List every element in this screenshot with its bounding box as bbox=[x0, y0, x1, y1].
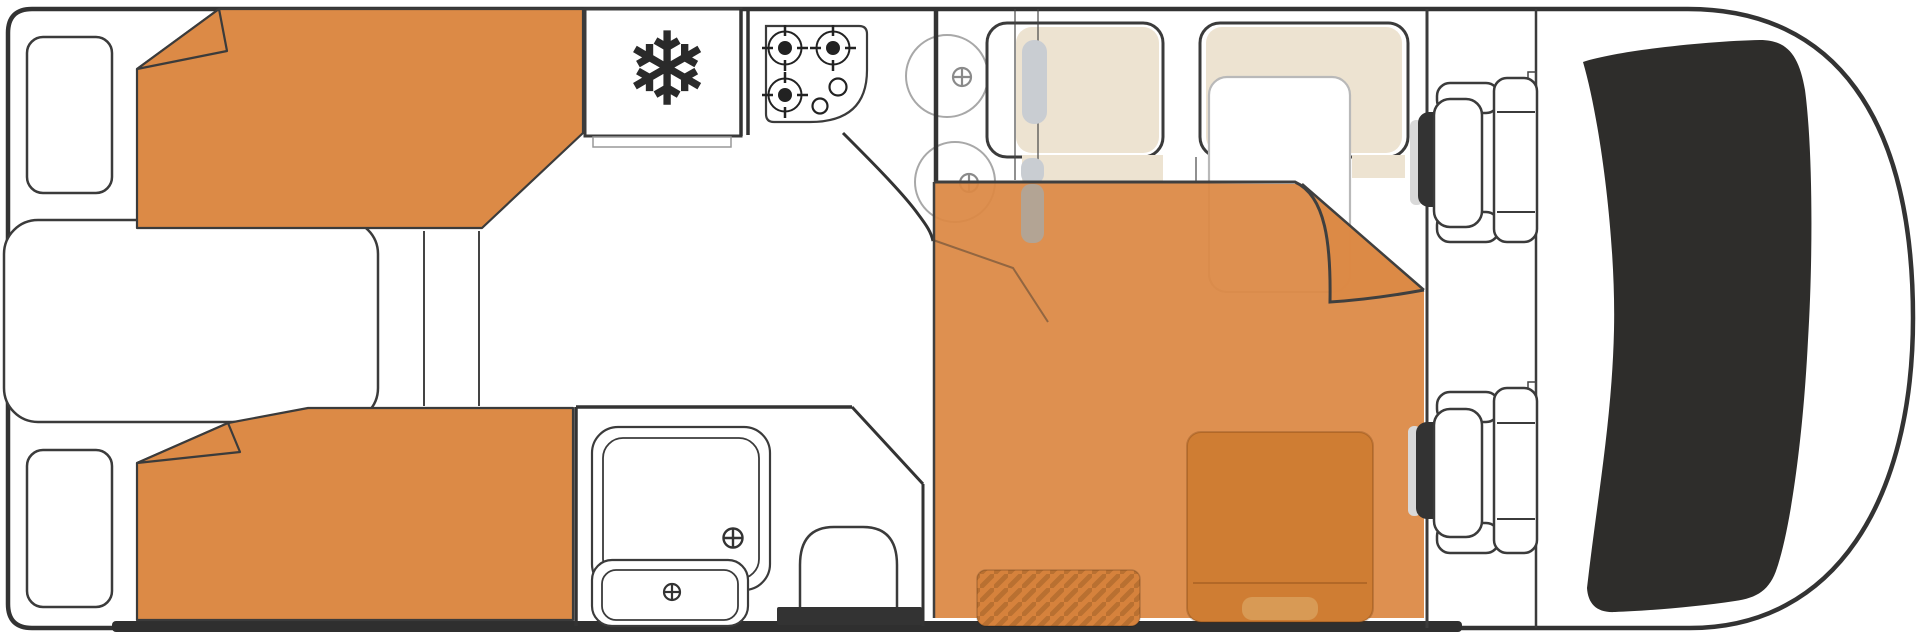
entry-step-mat-hatch bbox=[977, 570, 1140, 626]
floorplan-canvas: ❄ bbox=[0, 0, 1920, 635]
stove-knob-2 bbox=[813, 99, 828, 114]
snowflake-icon: ❄ bbox=[625, 11, 709, 128]
sink-drain-1 bbox=[953, 68, 971, 86]
center-platform bbox=[4, 220, 378, 422]
cab-seat-top-backrest bbox=[1494, 78, 1537, 242]
dinette-bench-front-cushion-lower bbox=[1352, 155, 1405, 178]
sink-bowl-1 bbox=[906, 35, 988, 117]
windshield-dashboard bbox=[1583, 40, 1811, 612]
cab-seat-bottom-cushion bbox=[1434, 409, 1482, 537]
counter-edge bbox=[843, 133, 933, 241]
seatbelt-front-ghost bbox=[1021, 184, 1044, 243]
bathroom bbox=[576, 407, 923, 626]
cab-seat-bottom-backrest bbox=[1494, 388, 1537, 553]
floorplan-page: ❄ bbox=[0, 0, 1920, 635]
bathroom-wall-diagonal bbox=[852, 407, 923, 484]
shower-tray bbox=[603, 438, 759, 579]
basin-inner bbox=[602, 570, 738, 620]
fridge-shelf bbox=[593, 137, 731, 147]
bottom-bed-pillow bbox=[27, 450, 112, 607]
rear-bedroom bbox=[4, 9, 583, 620]
toilet-base bbox=[777, 607, 922, 625]
toilet-bowl bbox=[800, 527, 897, 612]
cab-seat-bottom bbox=[1434, 388, 1537, 553]
cab-seat-top-cushion bbox=[1434, 99, 1482, 227]
seatbelt-front-upper bbox=[1021, 158, 1044, 184]
top-bed-pillow bbox=[27, 37, 112, 193]
stove-knob-1 bbox=[830, 79, 847, 96]
basin-drain bbox=[664, 584, 680, 600]
stored-table-pill bbox=[1242, 597, 1318, 620]
stored-table bbox=[1187, 432, 1373, 622]
dinette-bed-overlay bbox=[933, 182, 1424, 626]
seatbelt-rear bbox=[1022, 40, 1047, 124]
shower-drain bbox=[724, 529, 743, 548]
cab-seat-top bbox=[1434, 78, 1537, 242]
cab bbox=[1408, 9, 1811, 628]
